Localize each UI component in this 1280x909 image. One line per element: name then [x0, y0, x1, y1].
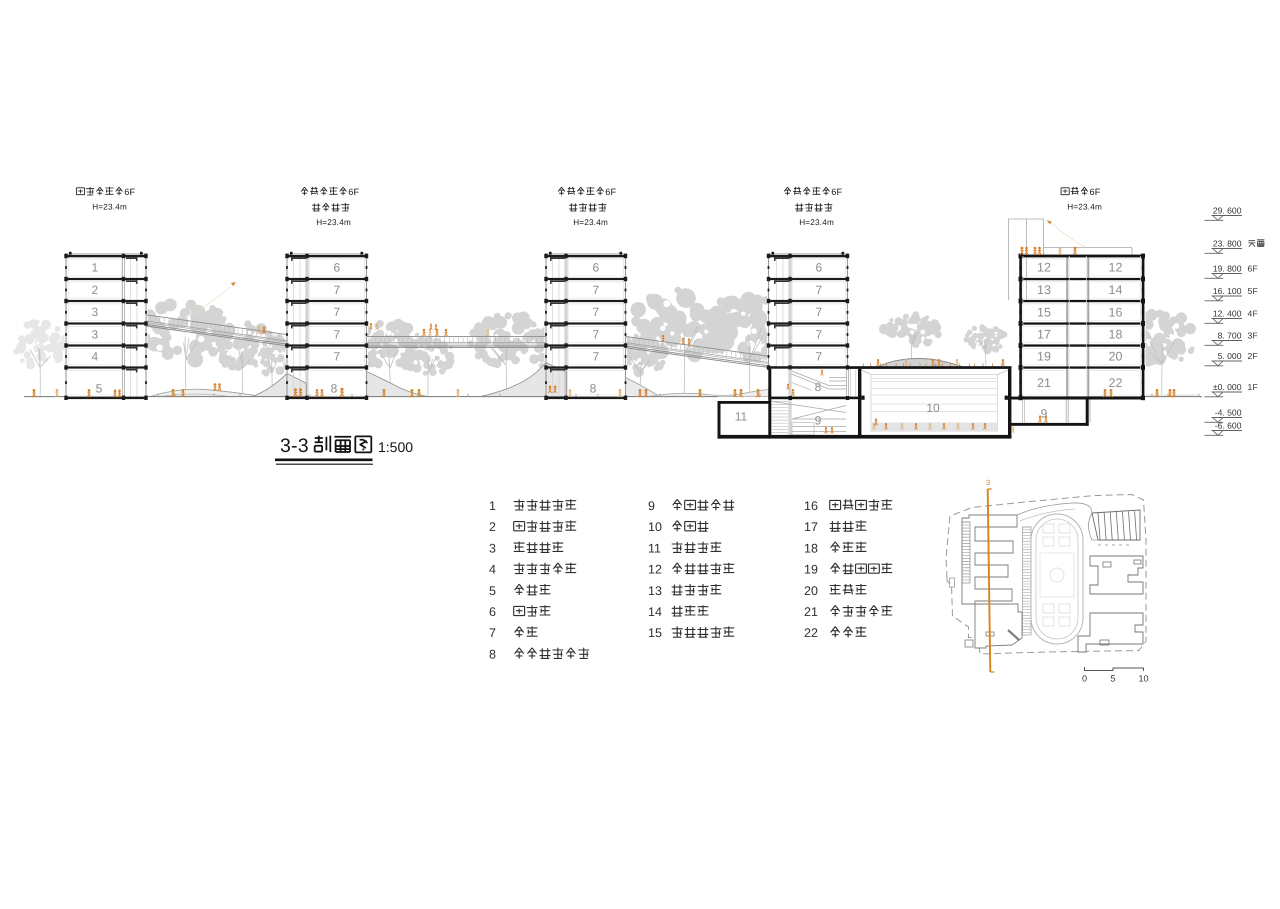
svg-text:7: 7: [333, 305, 340, 319]
svg-text:16: 16: [1109, 305, 1123, 319]
svg-text:8: 8: [489, 647, 496, 661]
svg-text:3: 3: [986, 478, 990, 487]
svg-text:6: 6: [333, 261, 340, 275]
svg-text:3: 3: [91, 328, 98, 342]
svg-text:5F: 5F: [1248, 286, 1258, 296]
svg-text:13: 13: [648, 584, 662, 598]
svg-text:6F: 6F: [1090, 187, 1101, 197]
svg-text:7: 7: [815, 328, 822, 342]
svg-text:5: 5: [489, 584, 496, 598]
svg-text:6F: 6F: [348, 187, 359, 197]
svg-text:6F: 6F: [124, 187, 135, 197]
svg-text:17: 17: [804, 520, 818, 534]
svg-text:6F: 6F: [605, 187, 616, 197]
svg-text:1: 1: [489, 499, 496, 513]
svg-text:7: 7: [333, 350, 340, 364]
svg-text:1:500: 1:500: [378, 439, 413, 455]
svg-text:7: 7: [815, 350, 822, 364]
svg-text:19: 19: [804, 563, 818, 577]
svg-text:12: 12: [1037, 261, 1051, 275]
svg-text:18: 18: [804, 541, 818, 555]
svg-text:7: 7: [815, 283, 822, 297]
svg-text:2F: 2F: [1248, 351, 1258, 361]
svg-text:4: 4: [489, 563, 496, 577]
svg-text:7: 7: [592, 283, 599, 297]
svg-text:7: 7: [592, 350, 599, 364]
svg-text:5. 000: 5. 000: [1218, 351, 1242, 361]
svg-text:7: 7: [592, 305, 599, 319]
svg-text:-4. 500: -4. 500: [1215, 408, 1242, 418]
svg-text:8: 8: [331, 382, 338, 396]
svg-text:6: 6: [592, 261, 599, 275]
svg-text:6: 6: [815, 261, 822, 275]
svg-text:29. 600: 29. 600: [1213, 206, 1242, 216]
svg-text:2: 2: [489, 520, 496, 534]
svg-text:20: 20: [804, 584, 818, 598]
svg-text:5: 5: [96, 382, 103, 396]
svg-text:13: 13: [1037, 283, 1051, 297]
svg-text:6: 6: [489, 605, 496, 619]
svg-text:14: 14: [648, 605, 662, 619]
svg-text:21: 21: [1037, 376, 1051, 390]
svg-text:1F: 1F: [1248, 382, 1258, 392]
svg-text:18: 18: [1109, 328, 1123, 342]
svg-text:12. 400: 12. 400: [1213, 309, 1242, 319]
svg-text:3: 3: [489, 541, 496, 555]
svg-text:10: 10: [648, 520, 662, 534]
svg-text:7: 7: [333, 328, 340, 342]
svg-text:4: 4: [91, 350, 98, 364]
svg-text:9: 9: [1041, 407, 1048, 421]
svg-text:7: 7: [333, 283, 340, 297]
svg-text:9: 9: [648, 499, 655, 513]
svg-text:17: 17: [1037, 328, 1051, 342]
svg-text:H=23.4m: H=23.4m: [316, 218, 351, 227]
svg-text:3: 3: [91, 305, 98, 319]
svg-text:3F: 3F: [1248, 331, 1258, 341]
svg-text:12: 12: [1109, 261, 1123, 275]
svg-text:12: 12: [648, 563, 662, 577]
svg-text:10: 10: [926, 401, 940, 415]
svg-text:±0. 000: ±0. 000: [1213, 382, 1242, 392]
svg-text:H=23.4m: H=23.4m: [1067, 203, 1102, 212]
svg-text:22: 22: [804, 626, 818, 640]
svg-text:15: 15: [648, 626, 662, 640]
svg-text:3-3: 3-3: [280, 435, 309, 457]
svg-text:14: 14: [1109, 283, 1123, 297]
svg-text:H=23.4m: H=23.4m: [799, 218, 834, 227]
svg-text:16. 100: 16. 100: [1213, 286, 1242, 296]
svg-text:H=23.4m: H=23.4m: [573, 218, 608, 227]
svg-text:19. 800: 19. 800: [1213, 264, 1242, 274]
svg-text:21: 21: [804, 605, 818, 619]
svg-text:15: 15: [1037, 305, 1051, 319]
svg-text:1: 1: [91, 261, 98, 275]
svg-text:H=23.4m: H=23.4m: [92, 203, 127, 212]
svg-text:-6. 600: -6. 600: [1215, 421, 1242, 431]
svg-text:11: 11: [648, 541, 661, 555]
svg-text:4F: 4F: [1248, 309, 1258, 319]
svg-text:0: 0: [1082, 674, 1087, 684]
svg-text:6F: 6F: [831, 187, 842, 197]
svg-text:7: 7: [815, 305, 822, 319]
svg-text:19: 19: [1037, 350, 1051, 364]
svg-text:7: 7: [489, 626, 496, 640]
svg-text:9: 9: [815, 414, 822, 428]
svg-text:11: 11: [735, 410, 748, 424]
svg-text:2: 2: [91, 283, 98, 297]
svg-text:6F: 6F: [1248, 264, 1258, 274]
svg-text:23. 800: 23. 800: [1213, 239, 1242, 249]
svg-text:10: 10: [1138, 674, 1148, 684]
svg-text:22: 22: [1109, 376, 1123, 390]
svg-text:8. 700: 8. 700: [1218, 331, 1242, 341]
svg-text:5: 5: [1110, 674, 1115, 684]
svg-text:16: 16: [804, 499, 818, 513]
svg-text:7: 7: [592, 328, 599, 342]
svg-text:8: 8: [590, 382, 597, 396]
svg-text:20: 20: [1109, 350, 1123, 364]
